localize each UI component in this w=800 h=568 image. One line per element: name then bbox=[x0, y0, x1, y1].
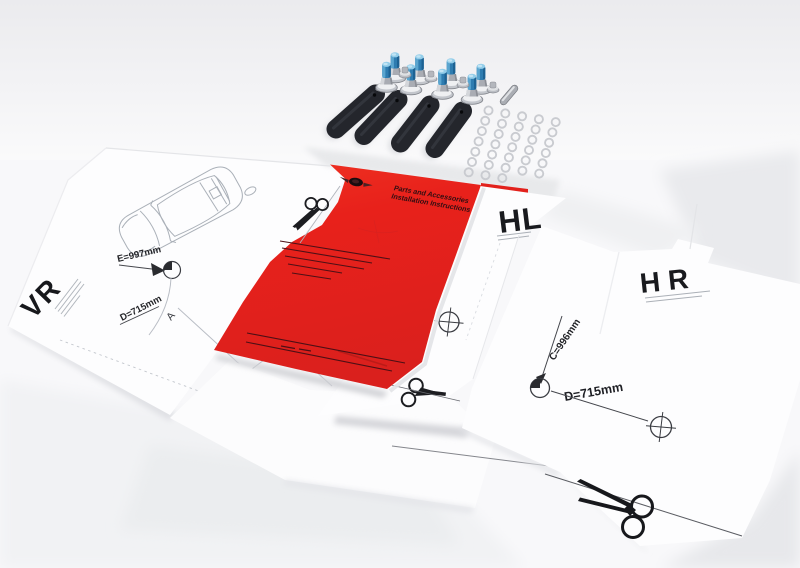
svg-text:HL: HL bbox=[497, 200, 544, 240]
